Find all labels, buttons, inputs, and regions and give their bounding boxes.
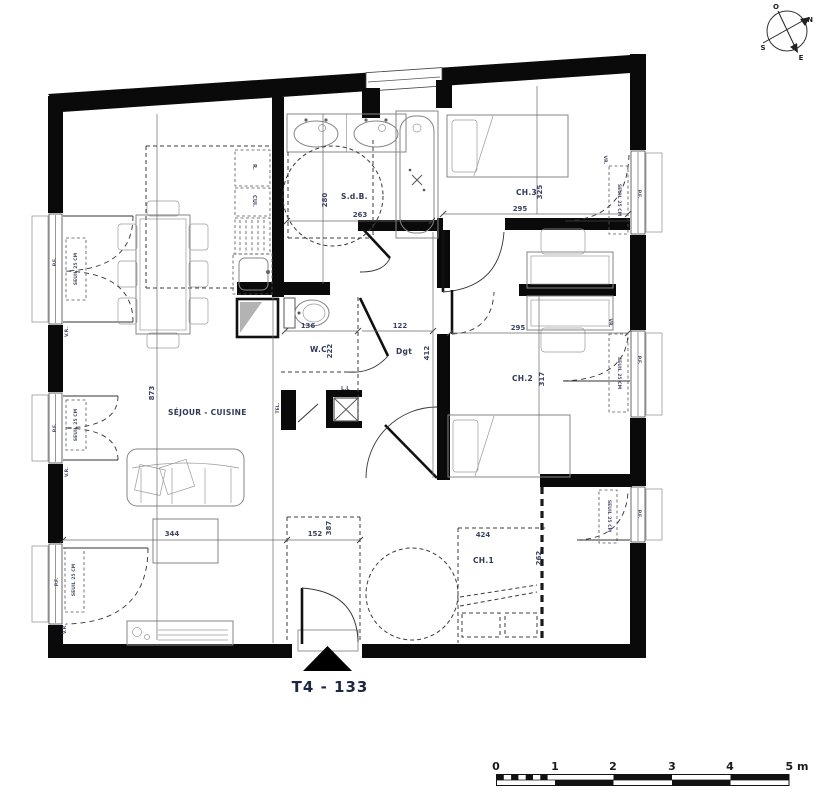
dining-table-inner <box>140 219 186 330</box>
ch3-desk <box>527 252 613 288</box>
scale-bar: 0 1 2 3 4 5 m <box>492 760 808 786</box>
compass-rose: O N S E <box>760 3 813 62</box>
wall-left-1 <box>48 96 63 213</box>
ch3-bed <box>447 115 568 177</box>
dim-424: 424 <box>476 531 491 539</box>
scale-seg-bottom <box>555 780 614 786</box>
window-sill <box>32 546 48 622</box>
window-sill <box>32 395 48 461</box>
wall-right-2 <box>630 235 646 330</box>
faucet-dot <box>384 118 387 121</box>
threshold-label: SEUIL 25 CM <box>73 408 79 441</box>
wall-wc-stub <box>281 390 296 430</box>
wall-top <box>48 54 646 112</box>
wall-washer-bottom <box>326 421 362 428</box>
faucet-dot <box>304 118 307 121</box>
ch1-turning-circle <box>366 548 458 640</box>
dim-412: 412 <box>423 346 431 361</box>
sofa-cushion <box>135 465 166 496</box>
sofa-seats <box>141 468 231 504</box>
outer-walls <box>48 54 646 658</box>
ch1-closet <box>462 613 500 637</box>
dim-263: 263 <box>353 211 368 219</box>
wall-bottom-right <box>362 644 646 658</box>
sofa-back <box>132 463 239 468</box>
text-labels: SÉJOUR - CUISINE 873 344 152 387 S.d.B. … <box>148 164 546 565</box>
wall-right-1 <box>630 54 646 150</box>
vr-label: V.R. <box>62 624 68 634</box>
window-swing-arc <box>65 428 118 460</box>
dashed-zones <box>281 140 545 643</box>
bathtub-dot <box>409 169 412 172</box>
dim-295-ch3: 295 <box>513 205 528 213</box>
vr-label: V.R. <box>64 327 70 337</box>
dim-280: 280 <box>321 193 329 208</box>
bathroom-fixtures <box>237 111 438 421</box>
compass-n: N <box>807 16 813 24</box>
pf-label: P.F. <box>54 578 60 587</box>
bathtub-outer <box>396 111 438 238</box>
dishwasher-hatch <box>240 220 264 252</box>
dim-222: 222 <box>326 344 334 359</box>
dim-295-ch2: 295 <box>511 324 526 332</box>
wc-door-leaf <box>360 298 388 356</box>
tel-label: TEL. <box>275 402 281 413</box>
wall-kitchen <box>272 97 284 297</box>
room-label-sdb: S.d.B. <box>341 192 368 201</box>
room-label-dgt: Dgt <box>396 347 412 356</box>
tv-unit-knob <box>133 628 142 637</box>
threshold-label: SEUIL 25 CM <box>616 357 622 390</box>
washbasin-drain <box>379 125 386 132</box>
scale-bar-checker <box>497 775 548 781</box>
vr-label: V.R. <box>64 467 70 477</box>
floor-plan-drawing: SÉJOUR - CUISINE 873 344 152 387 S.d.B. … <box>0 0 822 800</box>
toilet-bowl-inner <box>303 304 325 322</box>
compass-e: E <box>799 54 804 62</box>
scale-4: 4 <box>726 760 734 773</box>
dining-chairs <box>118 201 208 348</box>
dim-317: 317 <box>538 372 546 387</box>
room-label-ch2: CH.2 <box>512 374 533 383</box>
vr-label: VR. <box>607 319 613 328</box>
ch2-desk-chair <box>541 328 585 352</box>
stove-label: CUI. <box>251 195 257 207</box>
window-sill <box>32 216 48 322</box>
tv-unit-shelves <box>158 630 228 640</box>
compass-needle-oe <box>778 11 796 49</box>
scale-0: 0 <box>492 760 500 773</box>
threshold-label: SEUIL 25 CM <box>606 500 612 533</box>
ch3-pillow <box>452 120 477 172</box>
threshold-label: SEUIL 25 CM <box>616 184 622 217</box>
ch2-desk <box>527 296 613 330</box>
washbasin-left <box>294 121 338 147</box>
dim-262: 262 <box>535 551 543 566</box>
scale-2: 2 <box>609 760 617 773</box>
coffee-table <box>153 519 218 563</box>
ch1-closet-lines <box>460 585 537 606</box>
toilet-tank <box>284 298 295 328</box>
room-label-wc: W.C <box>310 345 327 354</box>
bathtub-drain <box>413 124 421 132</box>
faucet-dot <box>364 118 367 121</box>
faucet-dot <box>324 118 327 121</box>
dim-152: 152 <box>308 530 323 538</box>
window-swing-arc <box>577 492 628 540</box>
wall-left-2 <box>48 325 63 392</box>
ch3-desk-chair <box>541 229 585 254</box>
threshold-label: SEUIL 25 CM <box>73 252 79 285</box>
vr-label: VR. <box>602 156 608 165</box>
room-label-ch1: CH.1 <box>473 556 494 565</box>
pf-label: P.F. <box>636 356 642 365</box>
dim-344: 344 <box>165 530 180 538</box>
corridor-door-leaf <box>385 425 437 478</box>
scale-5m: 5 m <box>786 760 809 773</box>
washer-label: L.L <box>341 386 350 392</box>
scale-3: 3 <box>668 760 676 773</box>
entry-zone <box>287 517 360 643</box>
wall-wc-top <box>237 282 330 295</box>
wall-desk-divider <box>519 284 616 296</box>
dim-873: 873 <box>148 386 156 401</box>
window-sill <box>646 153 662 232</box>
scale-seg-top <box>614 775 673 781</box>
scale-seg-top <box>731 775 790 781</box>
toilet-dot <box>298 312 301 315</box>
ch1-closet <box>505 613 537 637</box>
pf-label: P.F. <box>52 258 58 267</box>
tv-unit <box>127 621 233 645</box>
sink-faucet <box>266 270 270 274</box>
bathtub-dot <box>423 189 426 192</box>
compass-needle-ns <box>763 19 806 43</box>
ch3-door-arc <box>443 232 504 292</box>
plan-title: T4 - 133 <box>292 678 369 696</box>
compass-o: O <box>773 3 779 11</box>
floor-plan-page: SÉJOUR - CUISINE 873 344 152 387 S.d.B. … <box>0 0 822 800</box>
wall-right-4 <box>630 543 646 658</box>
wall-left-3 <box>48 464 63 543</box>
window-sill <box>646 489 662 540</box>
wc-door-arc <box>348 356 388 372</box>
ch2-bed <box>448 415 570 477</box>
top-window-jamb-right <box>436 80 452 108</box>
washbasin-right <box>354 121 398 147</box>
wall-ch2-ch1 <box>540 474 632 487</box>
dining-table <box>136 215 190 334</box>
scale-seg-bottom <box>672 780 731 786</box>
threshold-label: SEUIL 25 CM <box>71 563 77 596</box>
bathtub-inner <box>400 116 434 233</box>
ch2-pillow <box>453 420 478 472</box>
closet-flap <box>298 404 318 422</box>
sdb-door-arc <box>360 258 390 272</box>
room-label-ch3: CH.3 <box>516 188 537 197</box>
window-swing-arc <box>66 548 148 624</box>
pf-label: P.F. <box>636 510 642 519</box>
fridge-label: R. <box>251 164 257 170</box>
bedroom-furniture <box>447 115 613 477</box>
washbasin-drain <box>319 125 326 132</box>
dim-122: 122 <box>393 322 408 330</box>
compass-s: S <box>760 44 765 52</box>
wall-right-3 <box>630 418 646 486</box>
scale-1: 1 <box>551 760 559 773</box>
pf-label: P.F. <box>636 190 642 199</box>
sdb-door-leaf <box>362 228 390 258</box>
sofa <box>127 449 244 506</box>
ch2-desk-inner <box>531 300 609 326</box>
ch3-desk-inner <box>531 256 609 284</box>
window-sill <box>646 333 662 415</box>
window-swing-arc <box>65 396 118 428</box>
wall-bottom-left <box>48 644 292 658</box>
dim-325: 325 <box>536 185 544 200</box>
ch2-door-arc <box>452 292 494 334</box>
sofa-cushion <box>159 459 194 494</box>
pf-label: P.F. <box>52 424 58 433</box>
room-label-sejour: SÉJOUR - CUISINE <box>168 408 247 417</box>
dim-387: 387 <box>325 521 333 536</box>
wall-ch3-bottom <box>505 218 630 230</box>
tv-unit-knob <box>145 635 150 640</box>
dim-136: 136 <box>301 322 316 330</box>
living-room-furniture <box>118 201 244 645</box>
